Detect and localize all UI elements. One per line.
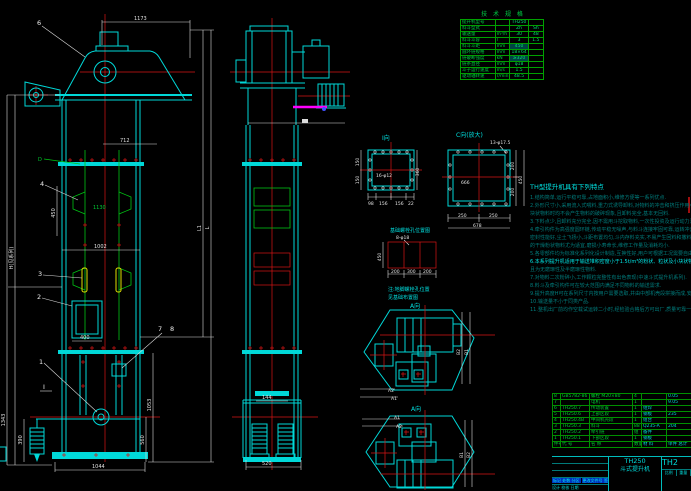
dim-chain-length: 1130 [93,205,106,211]
a-upper-dim-b2: B2 [456,349,462,355]
feature-line: 块状物料时均不会产生物料的破碎现象,且卸料完全,基本无回料. [530,210,691,218]
i-dim-b2: 156 [379,201,388,207]
product-model: TH250 [609,457,661,466]
dim-overall-l: L [205,226,211,229]
a-lower-dim-b1: B1 [459,452,465,458]
feature-line: 且为无磨琢性及半磨琢性物料. [530,266,691,274]
i-dim-b4: 22 [408,201,414,207]
i-view-flange-detail: I向 360 150 150 98 156 156 22 16-φ12 [355,134,422,207]
dim-boot-cap: 144 [262,395,272,401]
feature-line: 5.各零部件均为标准化系列化设计制造,互换性好,用户可根据工况需要自由选配组合,… [530,250,691,258]
c-view-label: C向(放大) [456,131,483,139]
spec-label: 驱动轴转速 [461,74,496,80]
dim-top-width: 1173 [134,16,147,22]
spec-value-1: 18×64 [510,50,528,56]
dim-door-width: 400 [80,335,90,341]
dim-right-mid: 1053 [147,399,153,412]
feature-line-highlight: 6.本系列提升机适用于输送堆积密度小于1.5t/m³的粉状、粒状及小块状物料,物… [530,258,691,266]
a-view-lower-label: A向 [411,405,421,413]
a-view-drive-lower: A向 A1 A2 B1 B2 [362,405,495,490]
bom-header-no: 件号 [553,442,561,448]
parts-list-table: 8 GB5782-86 螺栓 M20×80 4 0.05 7 电机 1 9.05 [552,393,691,448]
cad-drawing-canvas[interactable]: 1173 712 1130 450 1002 400 1044 1343 H(见… [0,0,691,491]
title-block-name-cell: TH250 斗式提升机 [609,457,662,491]
feature-line: 3.下料点少,且卸料充分完全,因不需用斗挖取物料,一次性投资及运行动力消耗均较低… [530,218,691,226]
bom-header-qty: 数量 [633,442,642,448]
dim-bucket-pitch: 450 [51,208,57,218]
i-view-label: I向 [382,134,390,142]
dim-head-drop: 712 [120,138,130,144]
balloon-7: 7 [158,325,162,333]
anchor-note-line1: 注:地脚螺栓孔位置 [388,286,430,293]
revision-label-right: 更改文件号 签名 [582,478,608,483]
c-dim-r2: 200 [510,188,516,197]
bom-code: GB5782-86 [561,394,590,400]
feature-line: 9.提升高度H可在系列尺寸内按用户需要选取,并由中部机壳段拼接而成,安装灵活方便… [530,290,691,298]
feature-line: 11.整机出厂前均作空载试运转二小时,经检验合格后方可出厂,质量可靠一流. [530,306,691,314]
section-mark-i: I [43,383,45,391]
balloon-3: 3 [38,270,42,278]
drawing-number: TH2 [662,457,691,469]
balloon-2: 2 [37,293,41,301]
balloon-1: 1 [39,358,43,366]
bom-header-row: 件号 代 号 名 称 数量 材 料 单件 总计 [553,442,691,448]
anchor-dim-left: 450 [377,253,383,262]
feature-line: 7.对物料二次粉碎小,工作颗粒完整性有出色表现(中速斗式提升机系列). [530,274,691,282]
revision-block: 标记 处数 分区更改文件号 签名 设计 校核 日期 [552,457,609,491]
anchor-bolt-layout: 基础螺栓孔位置图 8-φ18 450 200 300 200 注:地脚螺栓孔位置… [377,227,436,301]
a-lower-dim-a2: A2 [396,424,402,430]
feature-line: 4.牵引构件为高强度圆环链,传动平稳无噪声,与料斗连接牢固可靠,运转冲击小,工况… [530,226,691,234]
signature-row: 设计 校核 日期 [552,485,608,491]
dim-left-total: 1343 [1,414,7,427]
features-note-block: TH型提升机具有下列特点 1.结构简单,运行平稳可靠,占地面积小,维修方便等一系… [530,181,691,314]
spec-value-1: TH250 [510,20,528,26]
front-view-dimensions: 1173 712 1130 450 1002 400 1044 1343 H(见… [1,16,214,472]
anchor-dim-b1: 200 [391,269,400,275]
c-dim-total: 678 [473,223,482,229]
technical-spec-table: 技 术 规 格 提升机型号 TH250 料斗型式 Zh Sh [459,9,547,80]
i-dim-right: 360 [415,168,421,177]
c-dim-r1: 200 [510,162,516,171]
dim-right-boot: 560 [140,435,146,445]
revision-row-empty [552,471,608,478]
a-view-upper-label: A向 [410,302,420,310]
a-lower-dim-b2: B2 [466,452,472,458]
spec-row: 驱动轴转速 r/min 48.5 [461,74,544,80]
dim-mid-width: 1002 [94,244,107,250]
c-bolt-note: 13-φ17.5 [490,140,510,146]
revision-row-empty [552,457,608,464]
bom-header-wt: 单件 总计 [667,442,691,448]
spec-value-2 [528,74,543,80]
features-title: TH型提升机具有下列特点 [530,181,691,191]
title-block-number-cell: TH2 比例 重量 [662,457,691,491]
feature-line: 2.外形尺寸小,采用流入式喂料,重力式诱导卸料,对物料的冲击和挤压作用小,故提升… [530,202,691,210]
anchor-title: 基础螺栓孔位置图 [390,227,430,234]
dim-boot-width: 520 [262,461,272,467]
feature-line: 10.输送量不小于同类产品. [530,298,691,306]
feature-line: 8.料斗及牵引构件可在较大范围内满足不同物料的输送需求. [530,282,691,290]
dim-height-label: H(见系列) [8,247,15,270]
spec-unit: r/min [495,74,510,80]
weight-label: 重量 [677,470,691,476]
i-bolt-note: 16-φ12 [376,173,392,179]
front-elevation-view [25,14,195,462]
dim-overall-l1: L1 [197,225,203,231]
scale-label: 比例 [662,470,677,476]
i-dim-b1: 98 [368,201,374,207]
i-dim-b3: 156 [395,201,404,207]
spec-table-title: 技 术 规 格 [459,9,547,18]
a-lower-dim-a1: A1 [394,415,400,421]
anchor-dim-b3: 200 [423,269,432,275]
balloon-view-d: D [38,157,42,163]
a-upper-dim-a1: A1 [391,396,397,402]
dim-left-lower: 390 [18,435,24,445]
bom-header-name: 名 称 [590,442,633,448]
dim-base-width: 1044 [92,464,105,470]
a-view-drive-upper: A向 A2 A1 B2 B1 [360,302,495,402]
c-dim-r3: 450 [518,176,524,185]
revision-row-labels: 标记 处数 分区更改文件号 签名 [552,478,608,485]
side-elevation-view: 144 520 [230,18,350,470]
revision-row-empty [552,464,608,471]
c-dim-b2: 250 [489,213,498,219]
feature-line: 密封性能好,尘土飞扬小,斗距布置均匀,斗内存料充实,不易产生回料和撒料现象,对含… [530,234,691,242]
anchor-hole-note: 8-φ18 [396,235,409,241]
feature-line: 1.结构简单,运行平稳可靠,占地面积小,维修方便等一系列优点. [530,194,691,202]
feature-line: 的干燥粉状物料尤为适宜,磨损小寿命长,维修工作量及消耗均小. [530,242,691,250]
bom-header-code: 代 号 [561,442,590,448]
bom-header-mat: 材 料 [642,442,667,448]
anchor-dim-b2: 300 [407,269,416,275]
product-name: 斗式提升机 [609,466,661,474]
i-dim-left-1: 150 [355,158,361,167]
revision-label-left: 标记 处数 分区 [552,478,581,483]
c-dim-inner: 666 [461,180,470,186]
a-upper-dim-a2: A2 [388,388,394,394]
anchor-note-line2: 见基础布置图 [388,294,418,301]
i-dim-left-2: 150 [355,176,361,185]
balloon-8: 8 [170,325,174,333]
spec-value-1: 48.5 [510,74,528,80]
c-dim-b1: 250 [458,213,467,219]
title-block: 标记 处数 分区更改文件号 签名 设计 校核 日期 TH250 斗式提升机 TH… [552,456,691,491]
c-view-flange-detail: C向(放大) 13-φ17.5 200 200 450 666 250 250 … [442,131,524,229]
balloon-6: 6 [37,19,41,27]
balloon-4: 4 [40,180,44,188]
a-upper-dim-b1: B1 [464,349,470,355]
